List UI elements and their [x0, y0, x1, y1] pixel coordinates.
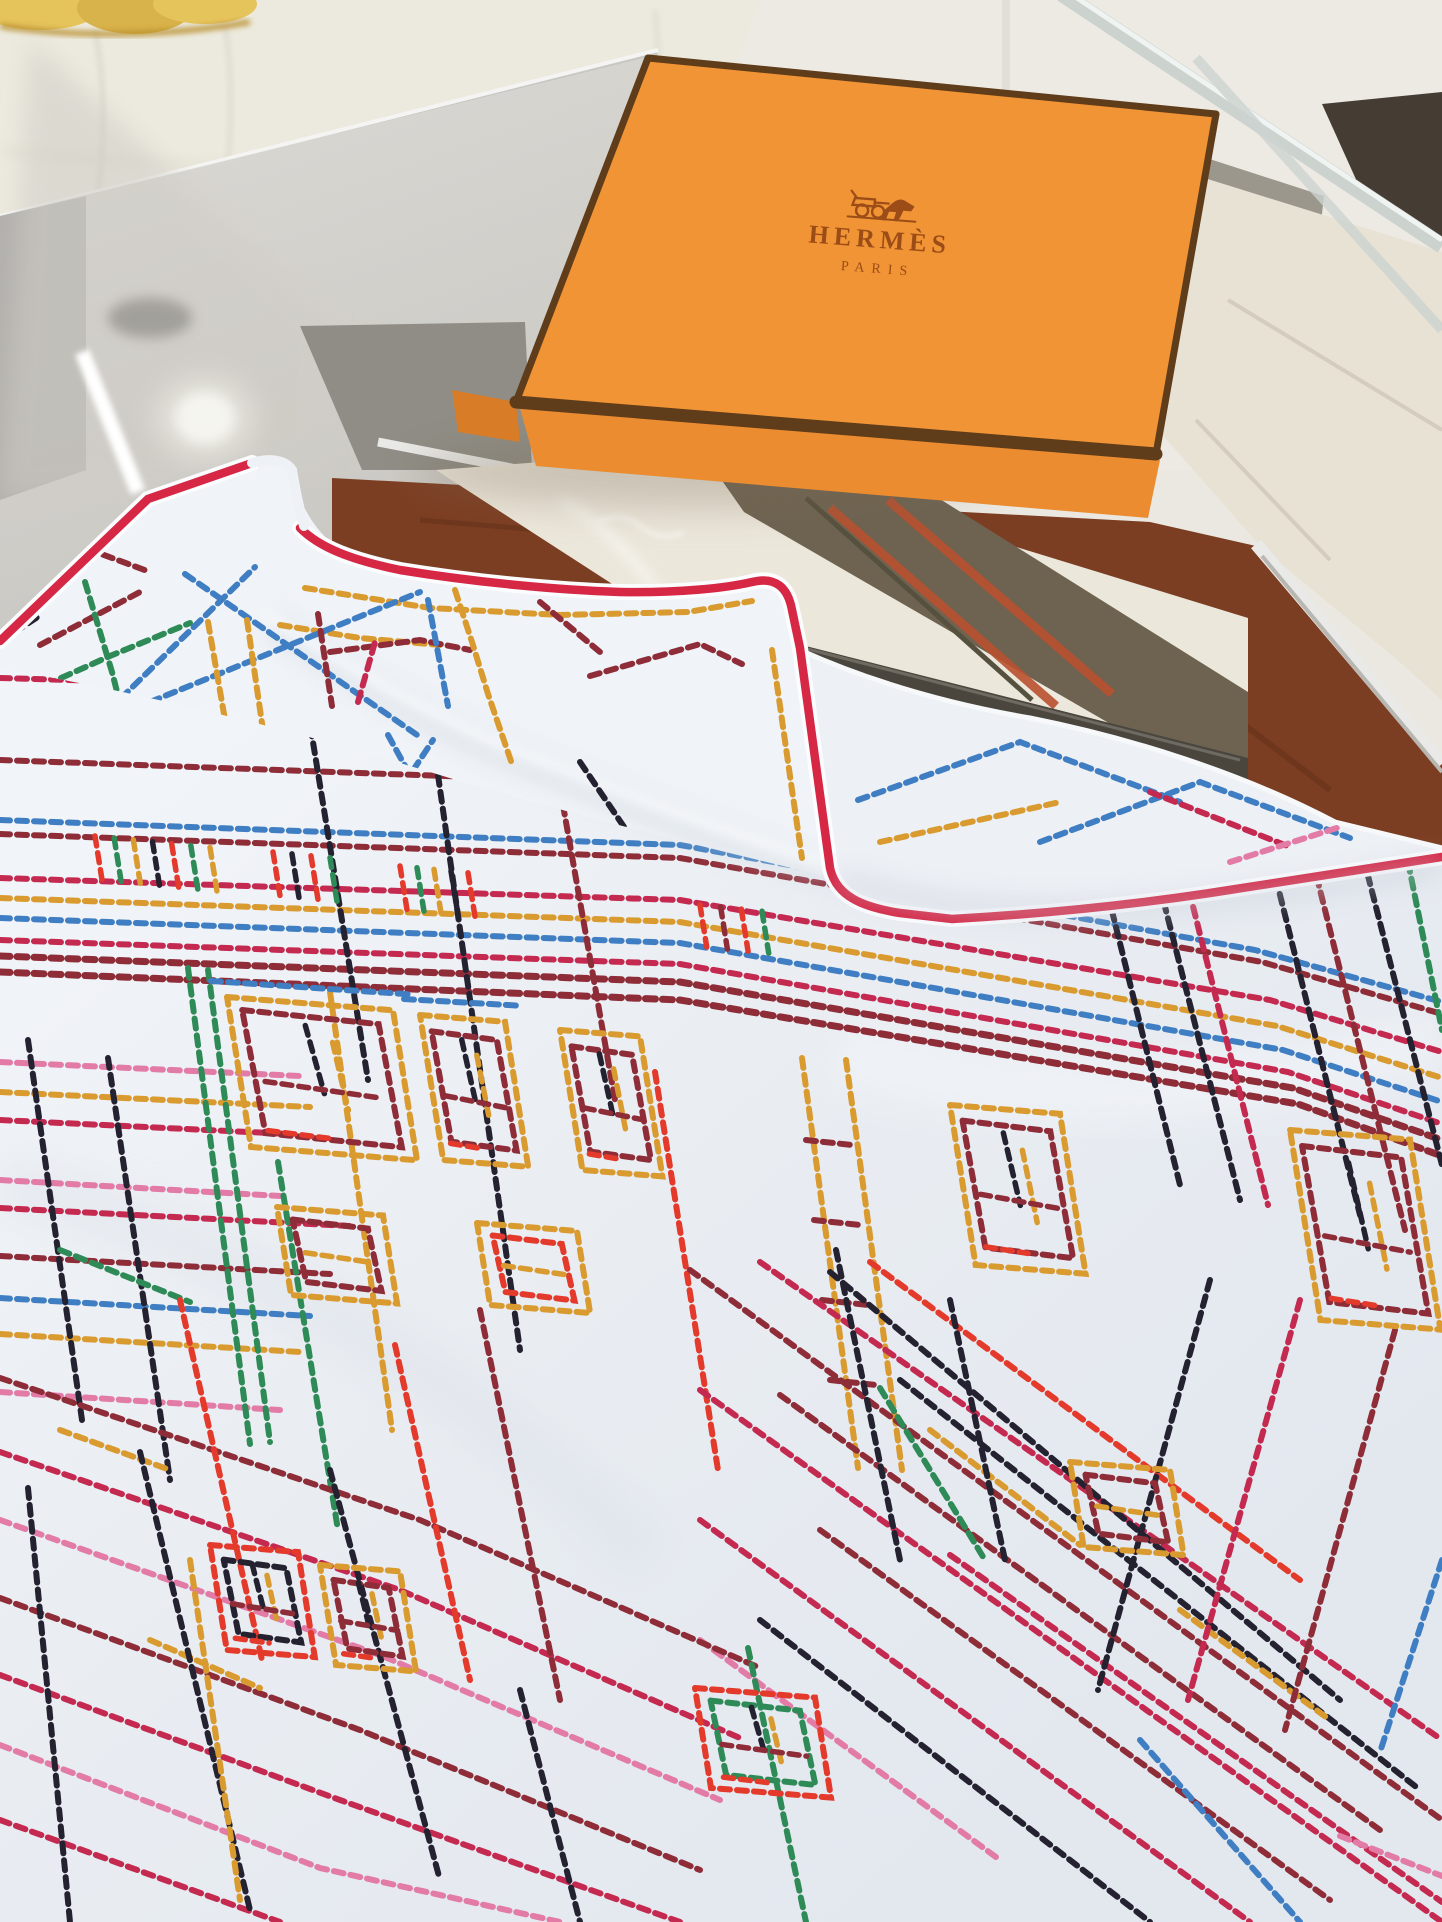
dark-smudge — [108, 298, 192, 338]
spotlight-glow — [153, 374, 257, 462]
plush-toy — [0, 0, 257, 34]
photo-scene: HERMÈS PARIS — [0, 0, 1442, 1922]
scene-canvas: HERMÈS PARIS — [0, 0, 1442, 1922]
